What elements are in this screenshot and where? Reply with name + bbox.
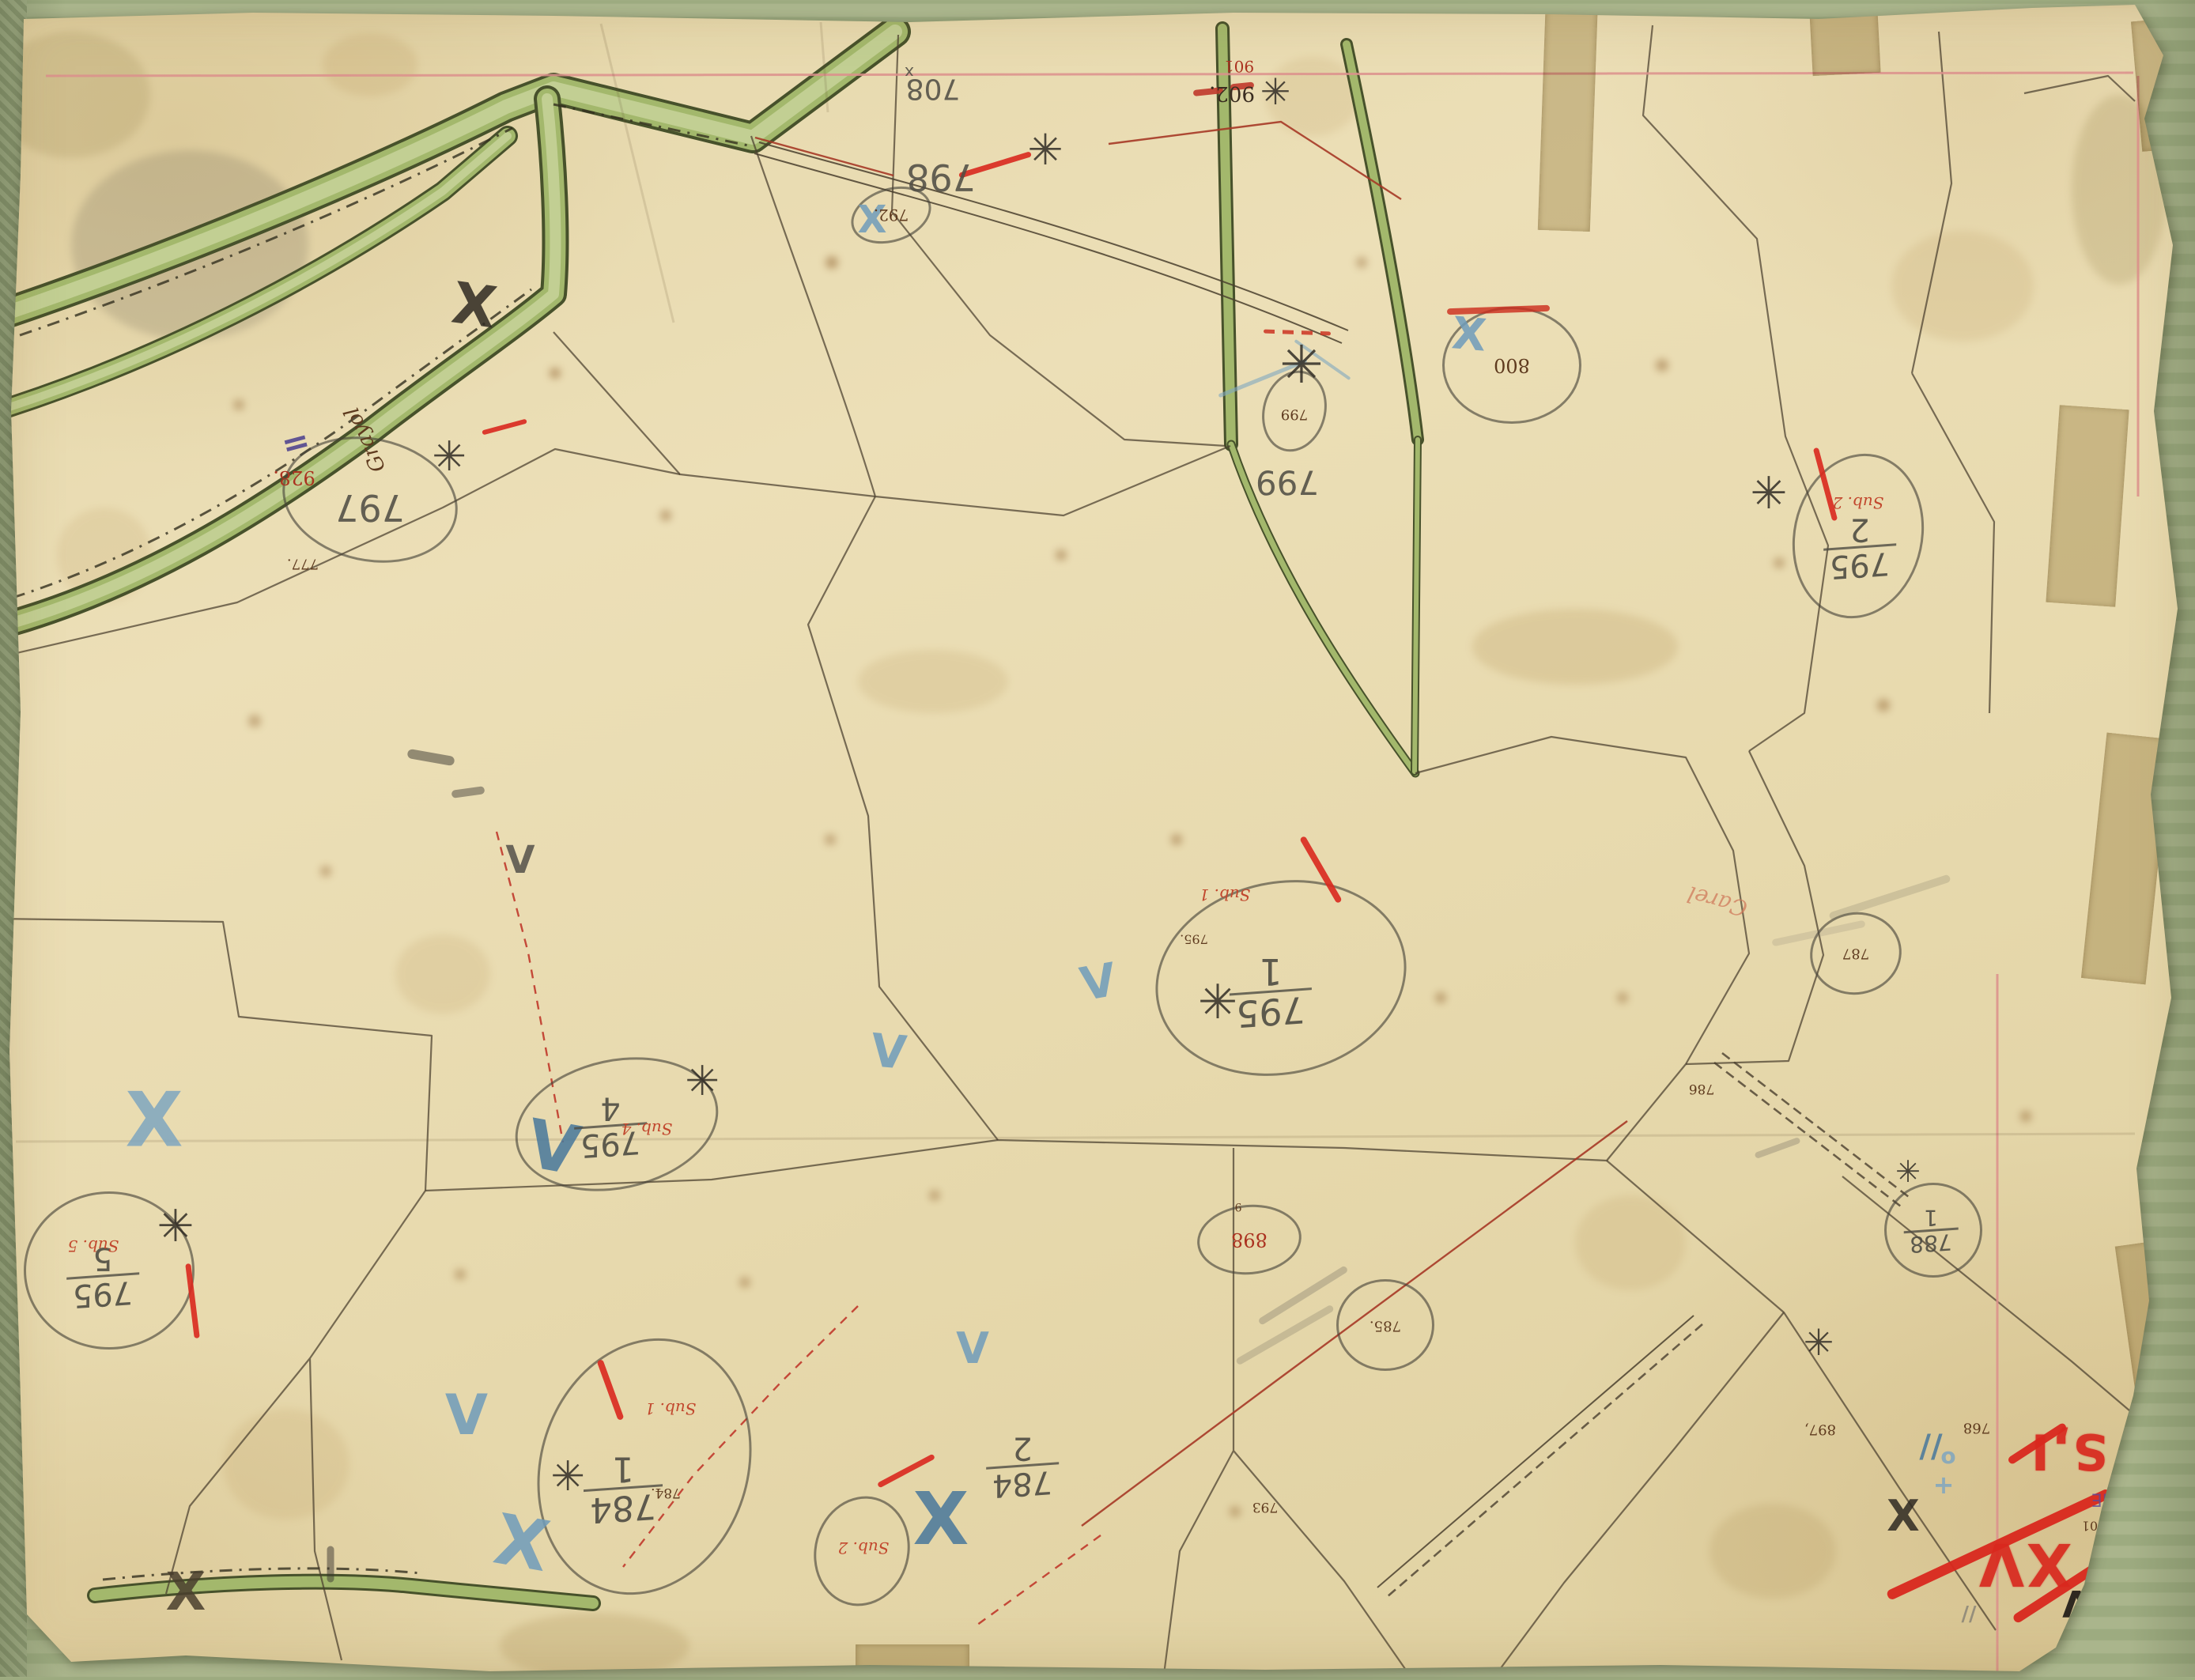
parcel-label: 793 [1252,1499,1278,1515]
parcel-label: Sub. 2 [1833,493,1884,512]
parcel-label: 898 [1231,1229,1268,1251]
map-line-work [0,0,2195,1677]
crayon-mark: X [1450,311,1488,359]
parcel-label: 708 [906,73,961,105]
crayon-mark: o [1940,1445,1955,1467]
parcel-label: 785. [1370,1318,1401,1335]
boundary [1643,25,1828,751]
parcel-label: XV [1977,1530,2072,1598]
parcel-label: 787 [1842,946,1869,962]
parcel-label: 795. [1180,932,1208,947]
parcel-fraction-numerator: 788 [1903,1227,1958,1256]
boundary [1842,1176,2135,1415]
crayon-mark: // [1919,1431,1942,1463]
parcel-label: 777. [287,556,319,572]
map-sheet-wrap: ✳✳✳✳✳✳✳✳✳✳✳ XXXVVVXVXX+oXVV=////X 795279… [0,0,2195,1677]
parcel-label: 901 [1224,57,1254,76]
crayon-mark: + [1933,1472,1955,1497]
parcel-label: 897, [1804,1421,1836,1438]
star-mark: ✳ [1260,74,1291,110]
parcel-label: 792. [874,206,909,225]
parcel-label: 786 [1689,1081,1714,1097]
parcel-fraction-denominator: 1 [584,1450,663,1486]
parcel-fraction-denominator: 2 [986,1432,1059,1465]
tape-repair [1808,0,1880,76]
parcel-label: NE [2091,1489,2115,1509]
stream-fill [1415,440,1418,772]
parcel-fraction-numerator: 795 [1230,987,1312,1034]
parcel-label: 768 [1963,1420,1990,1436]
parcel-label: Sub. 2 [838,1538,890,1557]
crayon-mark: V [505,841,535,879]
star-mark: ✳ [1751,472,1788,516]
star-mark: ✳ [685,1061,720,1102]
crayon-mark: X [913,1483,969,1556]
parcel-fraction-denominator: 1 [1230,952,1312,990]
parcel-label: S,I [2029,1423,2108,1481]
star-mark: ✳ [1804,1324,1834,1361]
parcel-label: Sub. 4 [621,1119,673,1138]
parcel-label: Sub. 1 [645,1399,697,1418]
crayon-mark: X [449,274,501,336]
parcel-label: 797 [335,486,405,529]
parcel-label: 784. [651,1485,681,1501]
road-line [754,153,1342,343]
survey-dashed [974,1535,1101,1627]
parcel-fraction-numerator: 784 [986,1462,1059,1502]
crease-line [601,24,674,323]
tape-repair [1538,0,1598,232]
parcel-fraction: 7842 [986,1432,1059,1501]
road-dashed [1722,1053,1909,1197]
tape-repair [2046,405,2129,607]
track-ticks [1387,1324,1702,1597]
survey-line [755,138,893,176]
parcel-fraction-numerator: 795 [1823,543,1896,583]
parcel-label: 799 [1281,406,1308,423]
parcel-label: 800 [1494,354,1530,376]
crayon-mark: V [956,1327,989,1370]
star-mark: ✳ [550,1456,585,1497]
boundary [0,919,432,1191]
crayon-mark: V [869,1027,909,1076]
boundary [1912,32,1994,713]
star-mark: ✳ [432,436,467,478]
parcel-fraction-denominator: 2 [1823,513,1896,546]
star-mark: ✳ [1895,1157,1921,1187]
parcel-label: Sub. 1 [1200,885,1251,904]
star-mark: ✳ [1279,339,1323,391]
star-mark: ✳ [1027,129,1063,172]
parcel-fraction-numerator: 795 [66,1272,139,1312]
parcel-label: 701 [2082,1519,2106,1534]
boundary [2024,76,2135,101]
parcel-fraction-denominator: 1 [1903,1206,1958,1229]
track-line [1377,1316,1694,1588]
mark-stroke [327,1546,334,1582]
parcel-fraction: 7952 [1823,513,1896,582]
parcel-label: 798 [906,156,976,198]
crayon-mark: V [1077,957,1120,1008]
crayon-mark: // [1962,1604,1977,1625]
parcel-fraction: 7951 [1230,952,1312,1031]
parcel-label: 9 [1235,1200,1242,1213]
crayon-mark: V [445,1387,488,1443]
parcel-label: Sub. 5 [68,1236,119,1255]
crayon-mark: X [166,1566,206,1618]
parcel-label: x [905,63,914,82]
boundary [751,136,1230,515]
parcel-label: 928. [273,466,315,489]
cadastral-map-sheet: ✳✳✳✳✳✳✳✳✳✳✳ XXXVVVXVXX+oXVV=////X 795279… [0,0,2195,1677]
tape-repair [856,1644,969,1680]
parcel-label: 902. [1209,81,1255,105]
tape-repair [2131,17,2195,152]
parcel-fraction: 7881 [1903,1206,1958,1255]
star-mark: ✳ [157,1205,195,1249]
survey-line [1109,122,1401,199]
crayon-mark: X [125,1084,183,1159]
crayon-mark: X [1887,1495,1920,1538]
crease-line [16,1134,2135,1142]
boundary [1496,1312,1784,1674]
boundary [553,332,875,496]
parcel-label: V [2062,1582,2091,1625]
parcel-label: 799 [1256,463,1319,502]
